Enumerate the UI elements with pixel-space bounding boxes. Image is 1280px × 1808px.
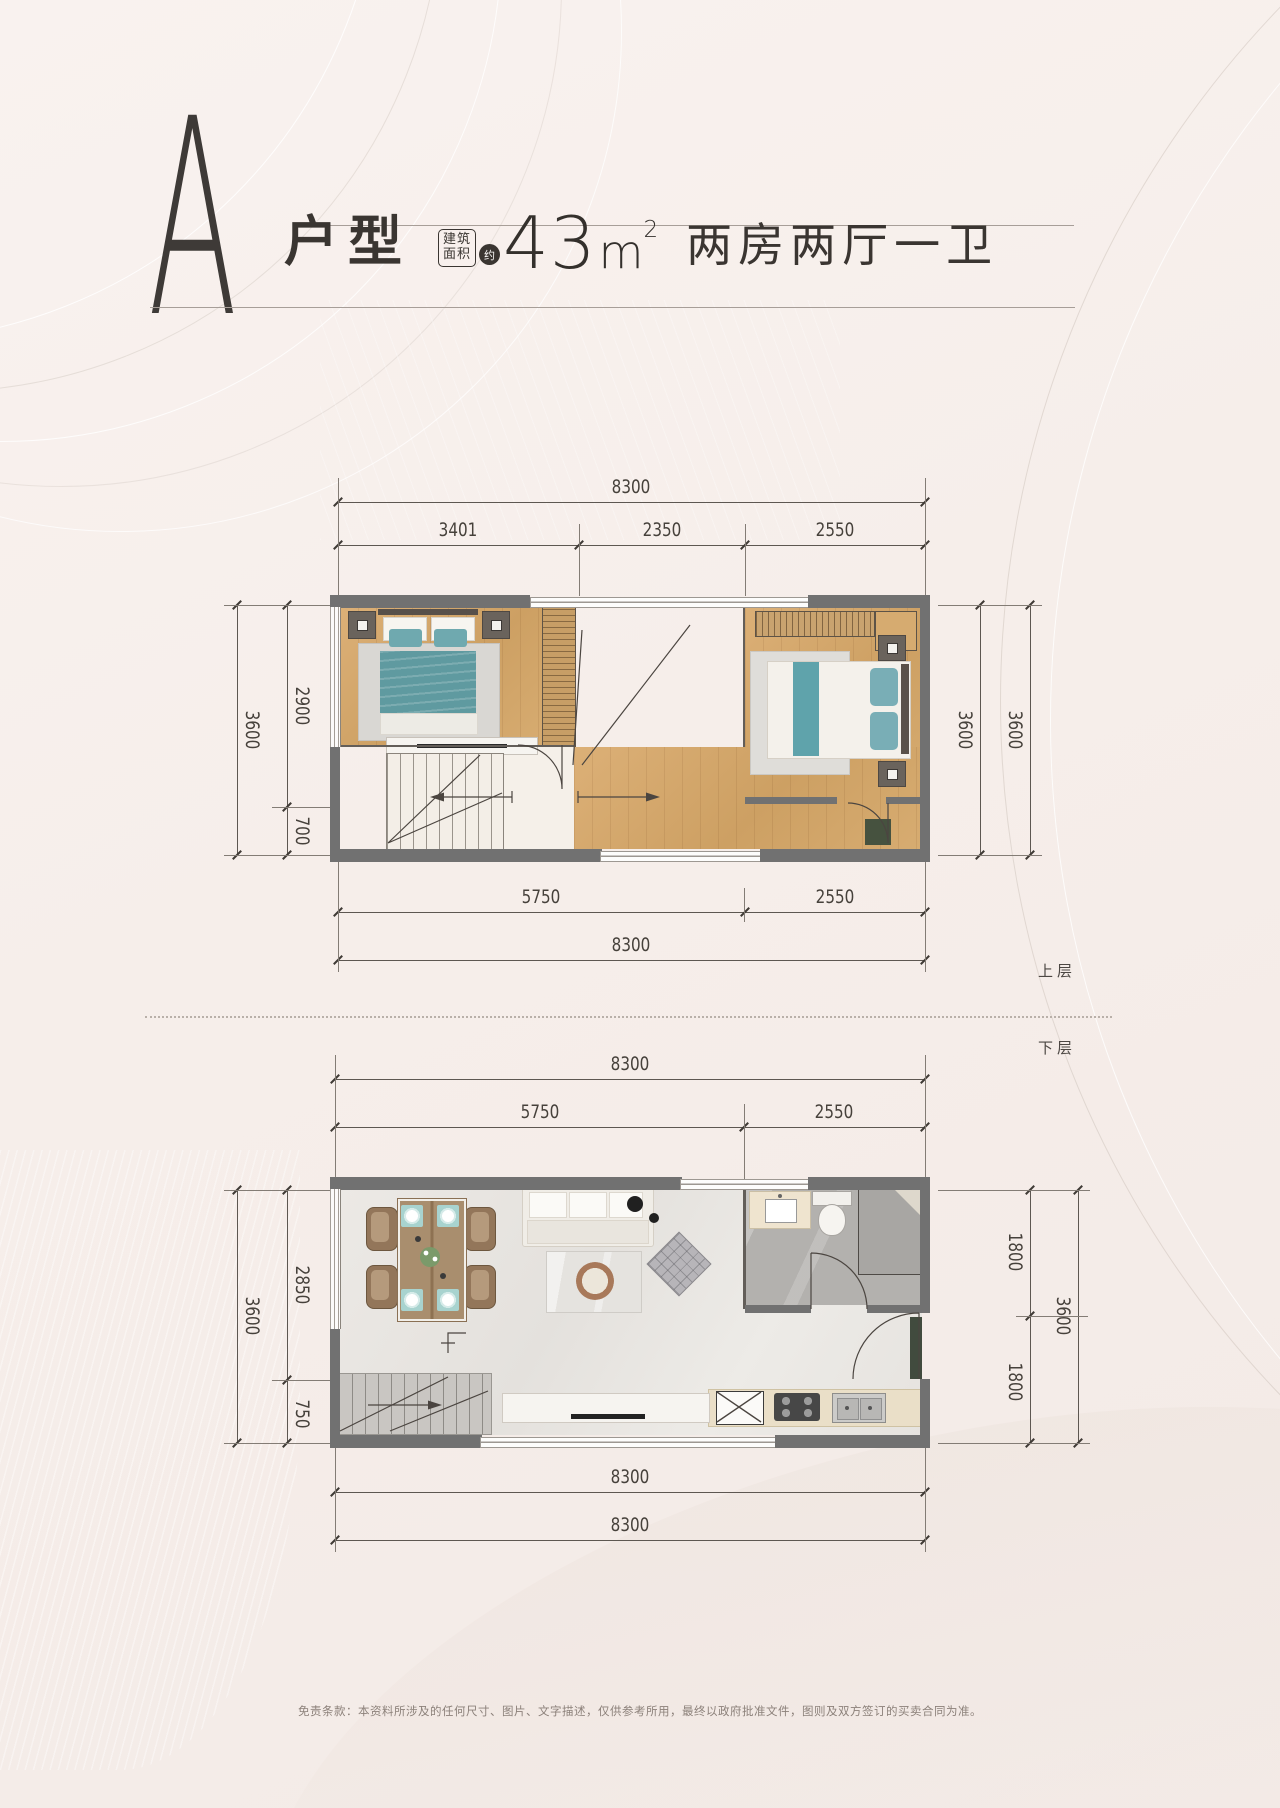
dim-line [237, 1190, 238, 1443]
stair-cut-line [388, 755, 502, 843]
dim-label: 8300 [611, 1466, 650, 1488]
dim-label: 8300 [612, 934, 651, 956]
unit-letter: A [148, 84, 239, 356]
dim-label: 2900 [291, 687, 313, 726]
background-curves [1050, 0, 1280, 1722]
dim-label: 2850 [291, 1266, 313, 1305]
extension-line [925, 1448, 926, 1552]
dim-label: 2550 [816, 519, 855, 541]
dim-line [338, 960, 925, 961]
refrigerator-cross [717, 1392, 761, 1422]
extension-line [938, 605, 1042, 606]
bathroom-door-arc [811, 1253, 867, 1309]
approx-badge: 约 [479, 244, 500, 265]
dim-label: 5750 [521, 1101, 560, 1123]
dim-line [338, 502, 925, 503]
extension-line [224, 1190, 332, 1191]
dim-line [338, 545, 925, 546]
dim-label: 1800 [1004, 1233, 1026, 1272]
floor-plan-lower [330, 1177, 930, 1448]
unit-type-label: 户型 [284, 215, 412, 273]
extension-line [925, 478, 926, 596]
background-line-fan [0, 1150, 300, 1770]
dim-label: 3600 [241, 711, 263, 750]
background-curves [1000, 0, 1280, 1702]
dim-label: 3401 [439, 519, 478, 541]
dim-label: 2350 [643, 519, 682, 541]
door-arc [518, 745, 562, 789]
extension-line [224, 855, 334, 856]
table-centerpiece [433, 1257, 438, 1262]
header-rule-bottom [150, 307, 1075, 308]
disclaimer-text: 免责条款：本资料所涉及的任何尺寸、图片、文字描述，仅供参考所用，最终以政府批准文… [0, 1703, 1280, 1719]
dim-line [335, 1540, 925, 1541]
dim-label: 3600 [241, 1297, 263, 1336]
extension-line [272, 1380, 334, 1381]
floor-plan-poster: A 户型 建筑 面积 约 43 m 2 两房两厅一卫 8300 3401 235… [0, 0, 1280, 1808]
walk-arrow-head [428, 1401, 442, 1410]
dim-line [335, 1127, 925, 1128]
dim-label: 8300 [612, 476, 651, 498]
walk-arrow [578, 791, 648, 803]
dim-label: 8300 [611, 1514, 650, 1536]
extension-line [925, 1055, 926, 1179]
floor-divider [145, 1016, 1112, 1018]
extension-line [224, 605, 332, 606]
area-unit: m [599, 232, 644, 273]
dim-label: 8300 [611, 1053, 650, 1075]
table-cup [440, 1273, 446, 1279]
dim-tick [740, 907, 750, 917]
extension-line [925, 862, 926, 972]
dim-label: 750 [291, 1399, 313, 1428]
side-table-plant [649, 1213, 659, 1223]
extension-line [938, 855, 1042, 856]
door-arc [848, 803, 888, 843]
dim-label: 3600 [1004, 711, 1026, 750]
extension-line [745, 524, 746, 596]
dim-label: 2550 [816, 886, 855, 908]
walk-start-mark [441, 1333, 466, 1353]
extension-line [938, 1443, 1090, 1444]
extension-line [579, 524, 580, 596]
dim-label: 5750 [522, 886, 561, 908]
dim-line [338, 912, 925, 913]
dim-line [287, 1190, 288, 1443]
area-badge-line1: 建筑 [443, 233, 471, 248]
extension-line [744, 1104, 745, 1179]
dim-line [980, 605, 981, 855]
table-cup [415, 1236, 421, 1242]
dim-line [1030, 605, 1031, 855]
background-line-fan [320, 300, 840, 540]
dim-label: 2550 [815, 1101, 854, 1123]
building-area-badge: 建筑 面积 [438, 229, 476, 267]
stair-cut-line [340, 1377, 488, 1431]
extension-line [338, 478, 339, 596]
dim-label: 700 [291, 816, 313, 845]
area-badge-line2: 面积 [443, 248, 471, 263]
extension-line [938, 1190, 1090, 1191]
area-exponent: 2 [643, 217, 658, 243]
void-edge-line [573, 625, 690, 765]
extension-line [272, 807, 334, 808]
dim-line [287, 605, 288, 855]
extension-line [744, 888, 745, 922]
upper-plan-annotations [330, 595, 930, 862]
dim-line [335, 1079, 925, 1080]
rooms-description: 两房两厅一卫 [686, 222, 998, 273]
floor-plan-upper [330, 595, 930, 862]
extension-line [335, 1055, 336, 1179]
dim-line [335, 1492, 925, 1493]
table-centerpiece [424, 1251, 429, 1256]
extension-line [224, 1443, 334, 1444]
walk-arrow-head [646, 793, 660, 802]
dim-label: 1800 [1004, 1363, 1026, 1402]
lower-floor-label: 下层 [1038, 1037, 1076, 1058]
side-table-plant [627, 1196, 643, 1212]
extension-line [335, 1448, 336, 1552]
upper-floor-label: 上层 [1038, 960, 1076, 981]
extension-line [1016, 1316, 1088, 1317]
dim-label: 3600 [954, 711, 976, 750]
dim-line [237, 605, 238, 855]
extension-line [338, 862, 339, 972]
lower-plan-annotations [330, 1177, 930, 1448]
area-value: 43 [503, 214, 597, 273]
title-row: 户型 建筑 面积 约 43 m 2 两房两厅一卫 [284, 214, 998, 273]
entry-door-arc [853, 1313, 919, 1379]
table-centerpiece [420, 1247, 440, 1267]
